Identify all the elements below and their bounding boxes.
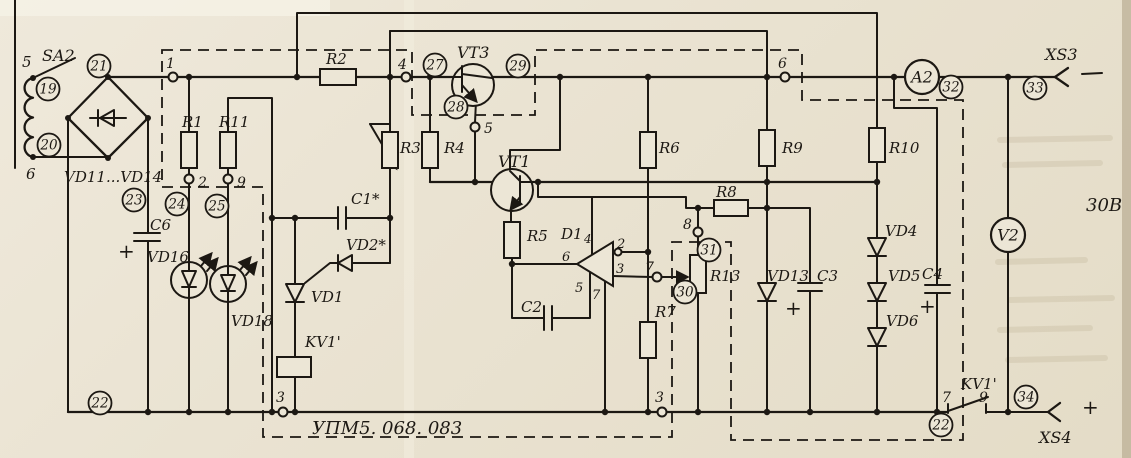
wire-number-25: 25 — [206, 195, 229, 218]
opamp-pin-wires — [592, 197, 652, 412]
module-pin-label-6: 6 — [778, 56, 787, 72]
module-pin-label-3: 3 — [655, 390, 664, 406]
resistor-r5-body — [504, 222, 520, 258]
wire-number-text-33: 33 — [1026, 81, 1043, 97]
label-connector-xs3: XS3 — [1043, 45, 1078, 64]
wire-number-text-22: 22 — [931, 418, 949, 434]
resistor-r10-body — [869, 128, 885, 162]
label-resistor-r11: R11 — [218, 113, 249, 131]
wire-number-text-24: 24 — [167, 197, 185, 213]
module-pin-9 — [224, 175, 233, 184]
module-pin-6 — [781, 73, 790, 82]
module-pin-4 — [402, 73, 411, 82]
resistor-r6-body — [640, 132, 656, 168]
label-relay-coil-kv1: KV1' — [304, 333, 341, 351]
label-diode-vd5: VD5 — [888, 267, 920, 285]
scanned-schematic-page: A2V2 1294567833 192021222223242527282930… — [0, 0, 1131, 458]
label-resistor-r3: R3 — [399, 139, 421, 157]
wire-number-27: 27 — [424, 54, 447, 77]
wire-number-33: 33 — [1024, 77, 1047, 100]
resistor-r4-body — [422, 132, 438, 168]
module-pin-label-1: 1 — [166, 56, 175, 72]
wire-number-30: 30 — [674, 281, 697, 304]
label-connector-xs4: XS4 — [1037, 428, 1072, 447]
module-pin-label-4: 4 — [397, 57, 407, 73]
resistor-r11-body — [220, 132, 236, 168]
transformer-winding — [25, 78, 33, 157]
label-transistor-vt3: VT3 — [457, 43, 489, 62]
resistor-r7-body — [640, 322, 656, 358]
label-coil-terminal-6: 6 — [26, 165, 36, 183]
wire-number-text-25: 25 — [207, 199, 225, 215]
relay-kv1-coil-body — [277, 357, 311, 377]
circuit-schematic: A2V2 1294567833 192021222223242527282930… — [0, 0, 1131, 458]
label-capacitor-c3: C3 — [817, 267, 838, 285]
label-bridge-vd11-vd14: VD11...VD14 — [64, 168, 162, 186]
label-resistor-r9: R9 — [781, 139, 803, 157]
label-capacitor-c6: C6 — [150, 216, 171, 234]
label-resistor-r4: R4 — [443, 139, 465, 157]
polarity-c4-plus: + — [919, 294, 936, 318]
label-resistor-r6: R6 — [658, 139, 680, 157]
wire-number-23: 23 — [123, 189, 146, 212]
label-resistor-r7: R7 — [654, 303, 676, 321]
label-d1-pin-4: 4 — [583, 232, 592, 246]
opamp-supply-wire — [538, 182, 714, 208]
resistor-r8-body — [714, 200, 748, 216]
module-pin-2 — [185, 175, 194, 184]
wire-number-34: 34 — [1015, 386, 1038, 409]
resistor-r3-body — [382, 132, 398, 168]
label-diode-vd4: VD4 — [885, 222, 917, 240]
wire-number-20: 20 — [38, 134, 61, 157]
label-diode-vd2: VD2* — [346, 236, 386, 254]
wire-number-text-27: 27 — [425, 58, 444, 74]
wire-number-text-23: 23 — [124, 193, 142, 209]
module-boundary-dashed — [162, 50, 963, 440]
wire-number-21: 21 — [88, 55, 111, 78]
wire-number-text-29: 29 — [508, 59, 527, 75]
wire-number-text-30: 30 — [676, 285, 694, 301]
meter-label-v2: V2 — [997, 226, 1019, 245]
wire-number-text-20: 20 — [39, 138, 58, 154]
label-resistor-r5: R5 — [526, 227, 548, 245]
label-capacitor-c1: C1* — [351, 190, 380, 208]
scan-dark-edge — [1122, 0, 1131, 458]
wire-number-24: 24 — [166, 193, 189, 216]
label-coil-terminal-5: 5 — [22, 53, 32, 71]
module-pin-label-5: 5 — [484, 121, 493, 137]
label-opamp-d1: D1 — [560, 225, 583, 243]
wire-number-text-19: 19 — [39, 82, 57, 98]
wire-number-text-22: 22 — [90, 396, 108, 412]
meter-a2: A2 — [905, 60, 939, 94]
vd1-relay-chain — [286, 218, 304, 412]
label-capacitor-c4: C4 — [922, 265, 943, 283]
scan-white-edge — [0, 0, 330, 16]
label-kv1-contact-pin-7: 7 — [942, 390, 951, 406]
output-voltage-label: 30В — [1086, 195, 1122, 216]
label-diode-vd6: VD6 — [886, 312, 919, 330]
wire-number-text-34: 34 — [1017, 390, 1034, 406]
xs4-socket-symbol — [1048, 403, 1060, 421]
module-pin-label-3: 3 — [276, 390, 285, 406]
label-d1-pin-5: 5 — [575, 281, 583, 296]
wire-number-29: 29 — [507, 55, 530, 78]
wire-number-32: 32 — [940, 76, 963, 99]
label-d1-pin-7: 7 — [592, 288, 601, 303]
module-pin-3 — [279, 408, 288, 417]
wire-number-31: 31 — [698, 239, 721, 262]
xs3-socket-symbol — [1055, 68, 1068, 86]
module-pin-3 — [658, 408, 667, 417]
resistor-r9-body — [759, 130, 775, 166]
module-pin-label-2: 2 — [197, 175, 207, 191]
module-pin-label-9: 9 — [237, 175, 246, 191]
polarity-xs4-plus: + — [1082, 395, 1099, 419]
junction-dots — [145, 74, 1011, 415]
label-d1-pin-6: 6 — [562, 250, 570, 265]
transistor-vt1-symbol — [491, 169, 533, 211]
opamp-d1-symbol — [577, 242, 622, 286]
label-resistor-r1: R1 — [181, 113, 203, 131]
meter-v2: V2 — [991, 218, 1025, 252]
c1-wires — [295, 207, 390, 229]
resistor-r2-body — [320, 69, 356, 85]
resistor-r1-body — [181, 132, 197, 168]
label-resistor-r2: R2 — [325, 50, 347, 68]
module-pin-label-7: 7 — [645, 260, 654, 276]
wire-number-19: 19 — [37, 78, 60, 101]
label-led-vd18: VD18 — [231, 312, 273, 330]
module-pin-label-8: 8 — [683, 217, 692, 233]
label-thyristor-vd1: VD1 — [311, 288, 343, 306]
wire-number-22: 22 — [930, 414, 953, 437]
polarity-c6-plus: + — [118, 239, 135, 263]
module-pins: 1294567833 — [166, 56, 790, 417]
label-resistor-r13: R13 — [709, 267, 740, 285]
module-pin-8 — [694, 228, 703, 237]
label-capacitor-c2: C2 — [521, 298, 542, 316]
label-led-vd16: VD16 — [147, 248, 189, 266]
polarity-c3-plus: + — [785, 296, 802, 320]
module-code-label: УПМ5. 068. 083 — [312, 418, 462, 439]
module-pin-1 — [169, 73, 178, 82]
label-d1-pin-2: 2 — [616, 237, 625, 252]
wire-number-text-31: 31 — [700, 243, 717, 259]
module-pin-5 — [471, 123, 480, 132]
label-diode-vd13: VD13 — [767, 267, 809, 285]
label-resistor-r8: R8 — [715, 183, 737, 201]
wire-number-text-21: 21 — [89, 59, 107, 75]
label-transistor-vt1: VT1 — [498, 152, 530, 171]
wire-number-text-32: 32 — [942, 80, 959, 96]
c4-bypass-branch — [894, 77, 950, 412]
wire-number-22: 22 — [89, 392, 112, 415]
wire-number-text-28: 28 — [446, 100, 465, 116]
wire-number-28: 28 — [445, 96, 468, 119]
label-resistor-r10: R10 — [888, 139, 920, 157]
label-d1-pin-3: 3 — [616, 262, 624, 277]
led-vd18-symbol — [210, 258, 256, 302]
meter-label-a2: A2 — [909, 68, 933, 87]
c2-loop — [512, 264, 590, 330]
label-kv1-contact-pin-9: 9 — [979, 390, 988, 406]
label-switch-sa2: SA2 — [42, 46, 75, 65]
